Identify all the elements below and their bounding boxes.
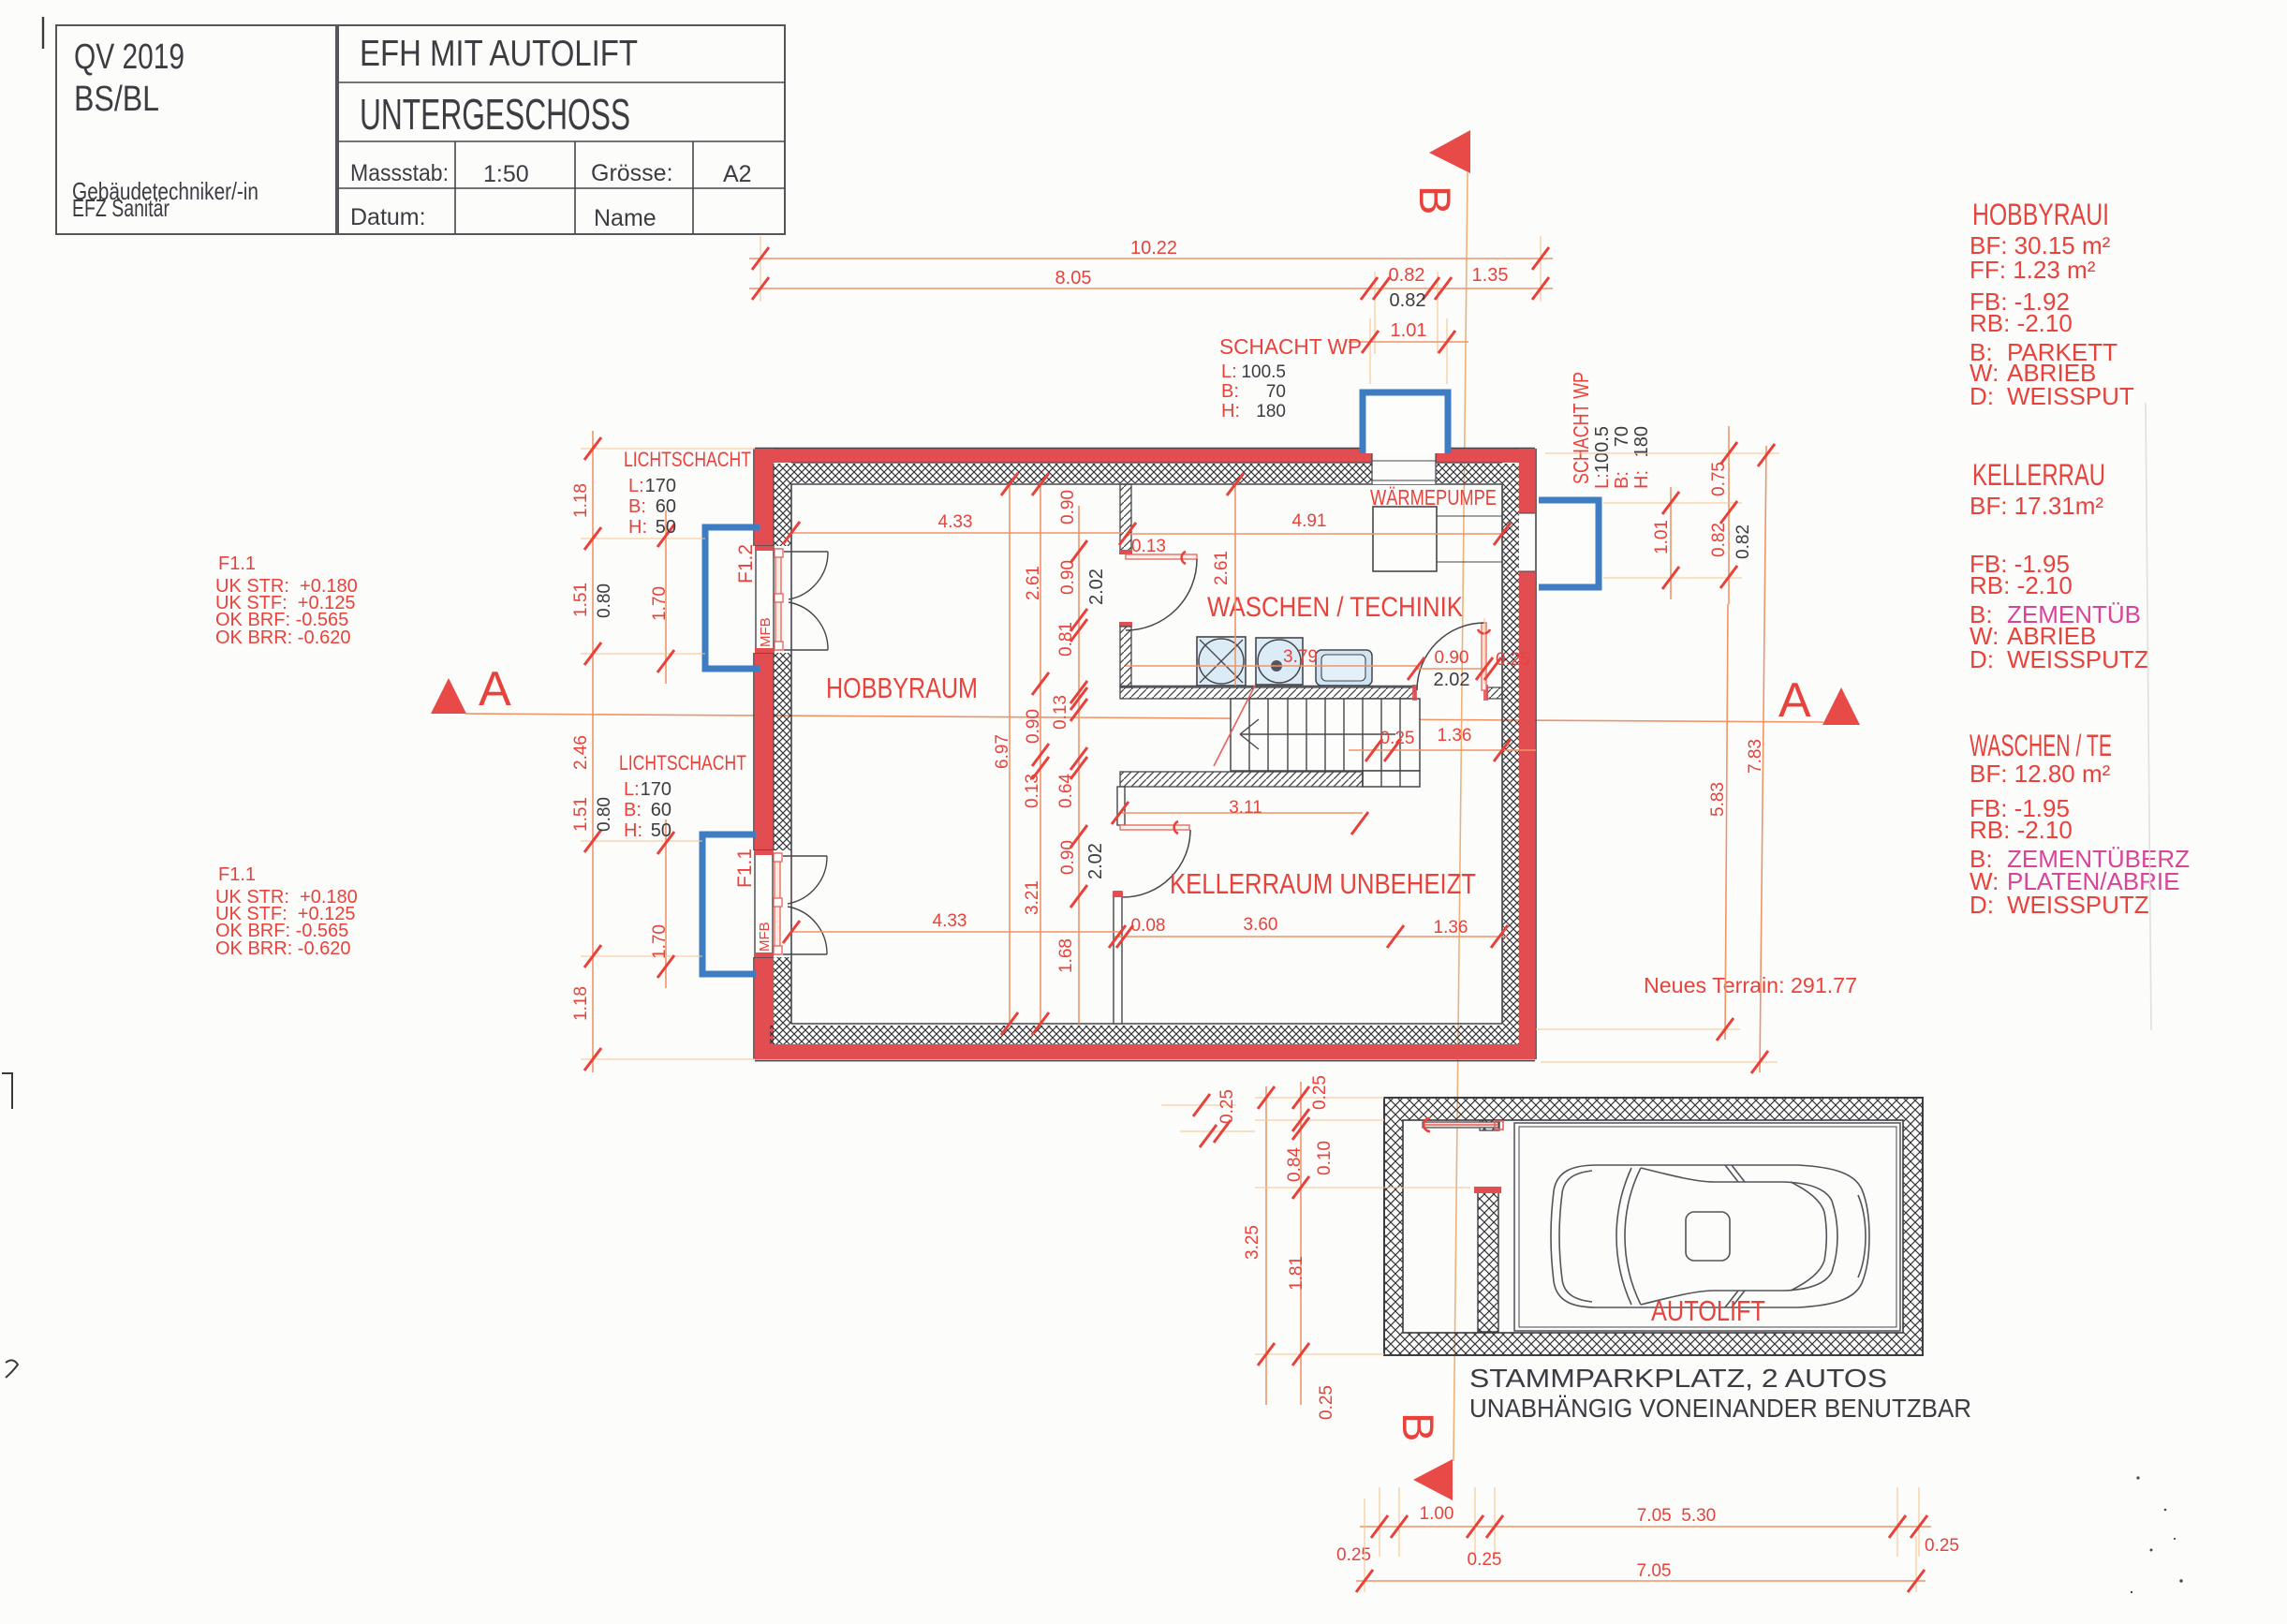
svg-text:UNTERGESCHOSS: UNTERGESCHOSS xyxy=(360,90,630,139)
svg-text:2.02: 2.02 xyxy=(1086,568,1107,605)
svg-text:0.75: 0.75 xyxy=(1709,462,1729,496)
svg-text:LICHTSCHACHT: LICHTSCHACHT xyxy=(624,448,751,471)
svg-text:1.18: 1.18 xyxy=(571,986,591,1021)
svg-text:L:: L: xyxy=(628,476,644,496)
svg-text:3.11: 3.11 xyxy=(1229,798,1262,818)
svg-text:Name: Name xyxy=(594,205,657,231)
svg-text:7.83: 7.83 xyxy=(1746,739,1765,774)
svg-text:0.90: 0.90 xyxy=(1058,490,1078,524)
svg-text:3.79: 3.79 xyxy=(1283,647,1318,667)
svg-text:0.25: 0.25 xyxy=(1336,1545,1371,1565)
svg-text:0.90: 0.90 xyxy=(1058,560,1078,595)
svg-text:4.33: 4.33 xyxy=(938,512,973,532)
svg-text:Datum:: Datum: xyxy=(350,204,426,230)
svg-text:STAMMPARKPLATZ, 2 AUTOS: STAMMPARKPLATZ, 2 AUTOS xyxy=(1469,1364,1887,1393)
svg-text:0.10: 0.10 xyxy=(1315,1141,1335,1175)
svg-text:QV 2019: QV 2019 xyxy=(74,37,184,77)
svg-text:100.5: 100.5 xyxy=(1241,362,1286,382)
svg-text:0.25: 0.25 xyxy=(1496,650,1530,670)
svg-text:0.25: 0.25 xyxy=(1217,1089,1237,1124)
svg-text:RB: -2.10: RB: -2.10 xyxy=(1970,571,2073,599)
svg-text:HOBBYRAUM: HOBBYRAUM xyxy=(826,672,978,704)
svg-text:1.51: 1.51 xyxy=(571,797,591,832)
svg-text:1:50: 1:50 xyxy=(483,161,529,187)
svg-text:OK BRR: -0.620: OK BRR: -0.620 xyxy=(215,627,351,648)
svg-text:170: 170 xyxy=(645,476,676,496)
svg-text:2.46: 2.46 xyxy=(571,735,591,770)
svg-text:EFZ Sanitär: EFZ Sanitär xyxy=(72,194,170,222)
svg-text:WASCHEN / TECHINIK: WASCHEN / TECHINIK xyxy=(1207,592,1463,623)
svg-text:SCHACHT WP: SCHACHT WP xyxy=(1219,334,1362,359)
svg-text:1.35: 1.35 xyxy=(1472,265,1509,286)
svg-text:HOBBYRAUI: HOBBYRAUI xyxy=(1972,198,2109,231)
svg-text:B:: B: xyxy=(624,800,642,820)
svg-text:FF: 1.23 m²: FF: 1.23 m² xyxy=(1970,256,2096,284)
svg-text:1.36: 1.36 xyxy=(1434,918,1468,937)
svg-text:0.25: 0.25 xyxy=(1925,1536,1959,1556)
svg-text:H:: H: xyxy=(628,517,647,538)
svg-text:Grösse:: Grösse: xyxy=(591,160,673,186)
svg-text:0.64: 0.64 xyxy=(1056,774,1076,808)
svg-text:Massstab:: Massstab: xyxy=(350,160,449,186)
svg-text:D:: D: xyxy=(1970,645,1994,673)
svg-text:A: A xyxy=(479,662,511,716)
svg-text:2.02: 2.02 xyxy=(1434,670,1470,690)
svg-text:0.84: 0.84 xyxy=(1285,1147,1305,1182)
svg-text:BS/BL: BS/BL xyxy=(74,80,159,119)
svg-text:KELLERRAUM UNBEHEIZT: KELLERRAUM UNBEHEIZT xyxy=(1170,867,1476,900)
svg-text:50: 50 xyxy=(656,517,676,538)
svg-text:2.61: 2.61 xyxy=(1024,566,1043,600)
svg-text:100.5: 100.5 xyxy=(1592,426,1613,473)
svg-text:Neues Terrain: 291.77: Neues Terrain: 291.77 xyxy=(1644,973,1857,997)
svg-text:50: 50 xyxy=(651,820,671,841)
svg-text:0.25: 0.25 xyxy=(1317,1385,1336,1420)
svg-text:3.60: 3.60 xyxy=(1244,915,1278,935)
svg-text:0.25: 0.25 xyxy=(1310,1075,1330,1110)
svg-text:BF: 17.31m²: BF: 17.31m² xyxy=(1970,492,2103,520)
svg-text:L:: L: xyxy=(1592,473,1613,489)
svg-text:2.02: 2.02 xyxy=(1085,843,1106,879)
svg-text:1.81: 1.81 xyxy=(1287,1256,1306,1291)
svg-text:MFB: MFB xyxy=(757,922,773,952)
svg-text:F1.1: F1.1 xyxy=(734,849,756,888)
svg-text:10.22: 10.22 xyxy=(1130,238,1177,258)
svg-text:EFH MIT AUTOLIFT: EFH MIT AUTOLIFT xyxy=(360,34,638,74)
svg-text:RB: -2.10: RB: -2.10 xyxy=(1970,816,2073,844)
svg-text:WEISSPUTZ: WEISSPUTZ xyxy=(2007,891,2149,919)
svg-text:1.51: 1.51 xyxy=(571,583,591,617)
svg-text:0.81: 0.81 xyxy=(1056,622,1076,657)
svg-text:KELLERRAU: KELLERRAU xyxy=(1972,458,2105,492)
svg-text:AUTOLIFT: AUTOLIFT xyxy=(1651,1294,1765,1327)
svg-text:H:: H: xyxy=(1631,470,1652,489)
svg-text:1.36: 1.36 xyxy=(1438,726,1472,746)
svg-text:6.97: 6.97 xyxy=(993,734,1012,769)
svg-text:2.61: 2.61 xyxy=(1212,551,1232,585)
svg-text:0.13: 0.13 xyxy=(1051,695,1070,730)
svg-text:170: 170 xyxy=(641,779,671,800)
svg-text:B: B xyxy=(1410,185,1460,214)
svg-text:7.05: 7.05 xyxy=(1637,1561,1672,1581)
svg-text:180: 180 xyxy=(1256,402,1286,421)
svg-text:B:: B: xyxy=(628,496,646,517)
svg-text:8.05: 8.05 xyxy=(1055,268,1092,288)
svg-text:0.82: 0.82 xyxy=(1709,523,1729,557)
svg-text:WEISSPUTZ: WEISSPUTZ xyxy=(2007,645,2149,673)
svg-text:0.80: 0.80 xyxy=(595,583,614,618)
svg-text:D:: D: xyxy=(1970,891,1994,919)
svg-text:60: 60 xyxy=(656,496,676,517)
svg-text:B: B xyxy=(1394,1412,1443,1441)
svg-text:70: 70 xyxy=(1612,426,1632,447)
svg-text:0.82: 0.82 xyxy=(1390,290,1426,311)
svg-text:0.90: 0.90 xyxy=(1024,709,1043,744)
svg-text:0.25: 0.25 xyxy=(1468,1550,1502,1570)
svg-text:0.08: 0.08 xyxy=(1131,916,1166,936)
svg-text:1.18: 1.18 xyxy=(571,483,591,518)
svg-text:MFB: MFB xyxy=(758,617,774,647)
svg-text:1.00: 1.00 xyxy=(1420,1504,1454,1524)
svg-text:0.25: 0.25 xyxy=(1380,729,1415,748)
svg-text:B:: B: xyxy=(1221,381,1239,402)
svg-text:0.82: 0.82 xyxy=(1389,265,1425,286)
svg-text:H:: H: xyxy=(1221,401,1240,421)
svg-text:WÄRMEPUMPE: WÄRMEPUMPE xyxy=(1370,485,1497,509)
svg-text:F1.1: F1.1 xyxy=(218,864,256,885)
svg-text:4.33: 4.33 xyxy=(933,911,967,931)
svg-text:OK BRR: -0.620: OK BRR: -0.620 xyxy=(215,938,351,959)
svg-text:1.01: 1.01 xyxy=(1652,520,1672,554)
svg-text:3.25: 3.25 xyxy=(1243,1225,1262,1260)
svg-text:3.21: 3.21 xyxy=(1023,880,1042,915)
svg-text:A: A xyxy=(1778,673,1811,728)
svg-text:SCHACHT WP: SCHACHT WP xyxy=(1569,372,1593,484)
svg-text:L:: L: xyxy=(624,779,640,800)
svg-text:F1.2: F1.2 xyxy=(735,544,757,583)
svg-text:B:: B: xyxy=(1612,471,1632,489)
svg-text:1.70: 1.70 xyxy=(650,924,670,959)
svg-text:70: 70 xyxy=(1266,382,1286,402)
svg-text:RB: -2.10: RB: -2.10 xyxy=(1970,309,2073,337)
svg-text:1.68: 1.68 xyxy=(1056,938,1076,973)
svg-text:180: 180 xyxy=(1631,426,1652,457)
svg-text:1.70: 1.70 xyxy=(650,586,670,621)
svg-text:L:: L: xyxy=(1221,362,1237,382)
svg-text:D:: D: xyxy=(1970,382,1994,410)
svg-text:UNABHÄNGIG VONEINANDER BENUTZB: UNABHÄNGIG VONEINANDER BENUTZBAR xyxy=(1469,1394,1971,1423)
svg-text:0.82: 0.82 xyxy=(1734,524,1753,559)
svg-text:LICHTSCHACHT: LICHTSCHACHT xyxy=(619,751,746,775)
svg-text:WASCHEN / TE: WASCHEN / TE xyxy=(1970,729,2112,762)
svg-text:WEISSPUT: WEISSPUT xyxy=(2007,382,2134,410)
svg-text:60: 60 xyxy=(651,800,671,820)
svg-text:A2: A2 xyxy=(723,161,752,187)
svg-text:0.90: 0.90 xyxy=(1058,840,1078,875)
svg-text:BF: 12.80 m²: BF: 12.80 m² xyxy=(1970,760,2111,788)
svg-text:4.91: 4.91 xyxy=(1292,511,1327,531)
svg-text:0.13: 0.13 xyxy=(1023,774,1042,808)
svg-text:0.90: 0.90 xyxy=(1435,648,1469,668)
svg-text:F1.1: F1.1 xyxy=(218,554,256,574)
svg-text:1.01: 1.01 xyxy=(1391,320,1427,341)
svg-text:5.83: 5.83 xyxy=(1708,782,1728,817)
svg-text:7.05 5.30: 7.05 5.30 xyxy=(1637,1506,1717,1526)
svg-text:0.80: 0.80 xyxy=(595,797,614,832)
svg-text:H:: H: xyxy=(624,820,642,841)
svg-text:0.13: 0.13 xyxy=(1131,537,1166,556)
